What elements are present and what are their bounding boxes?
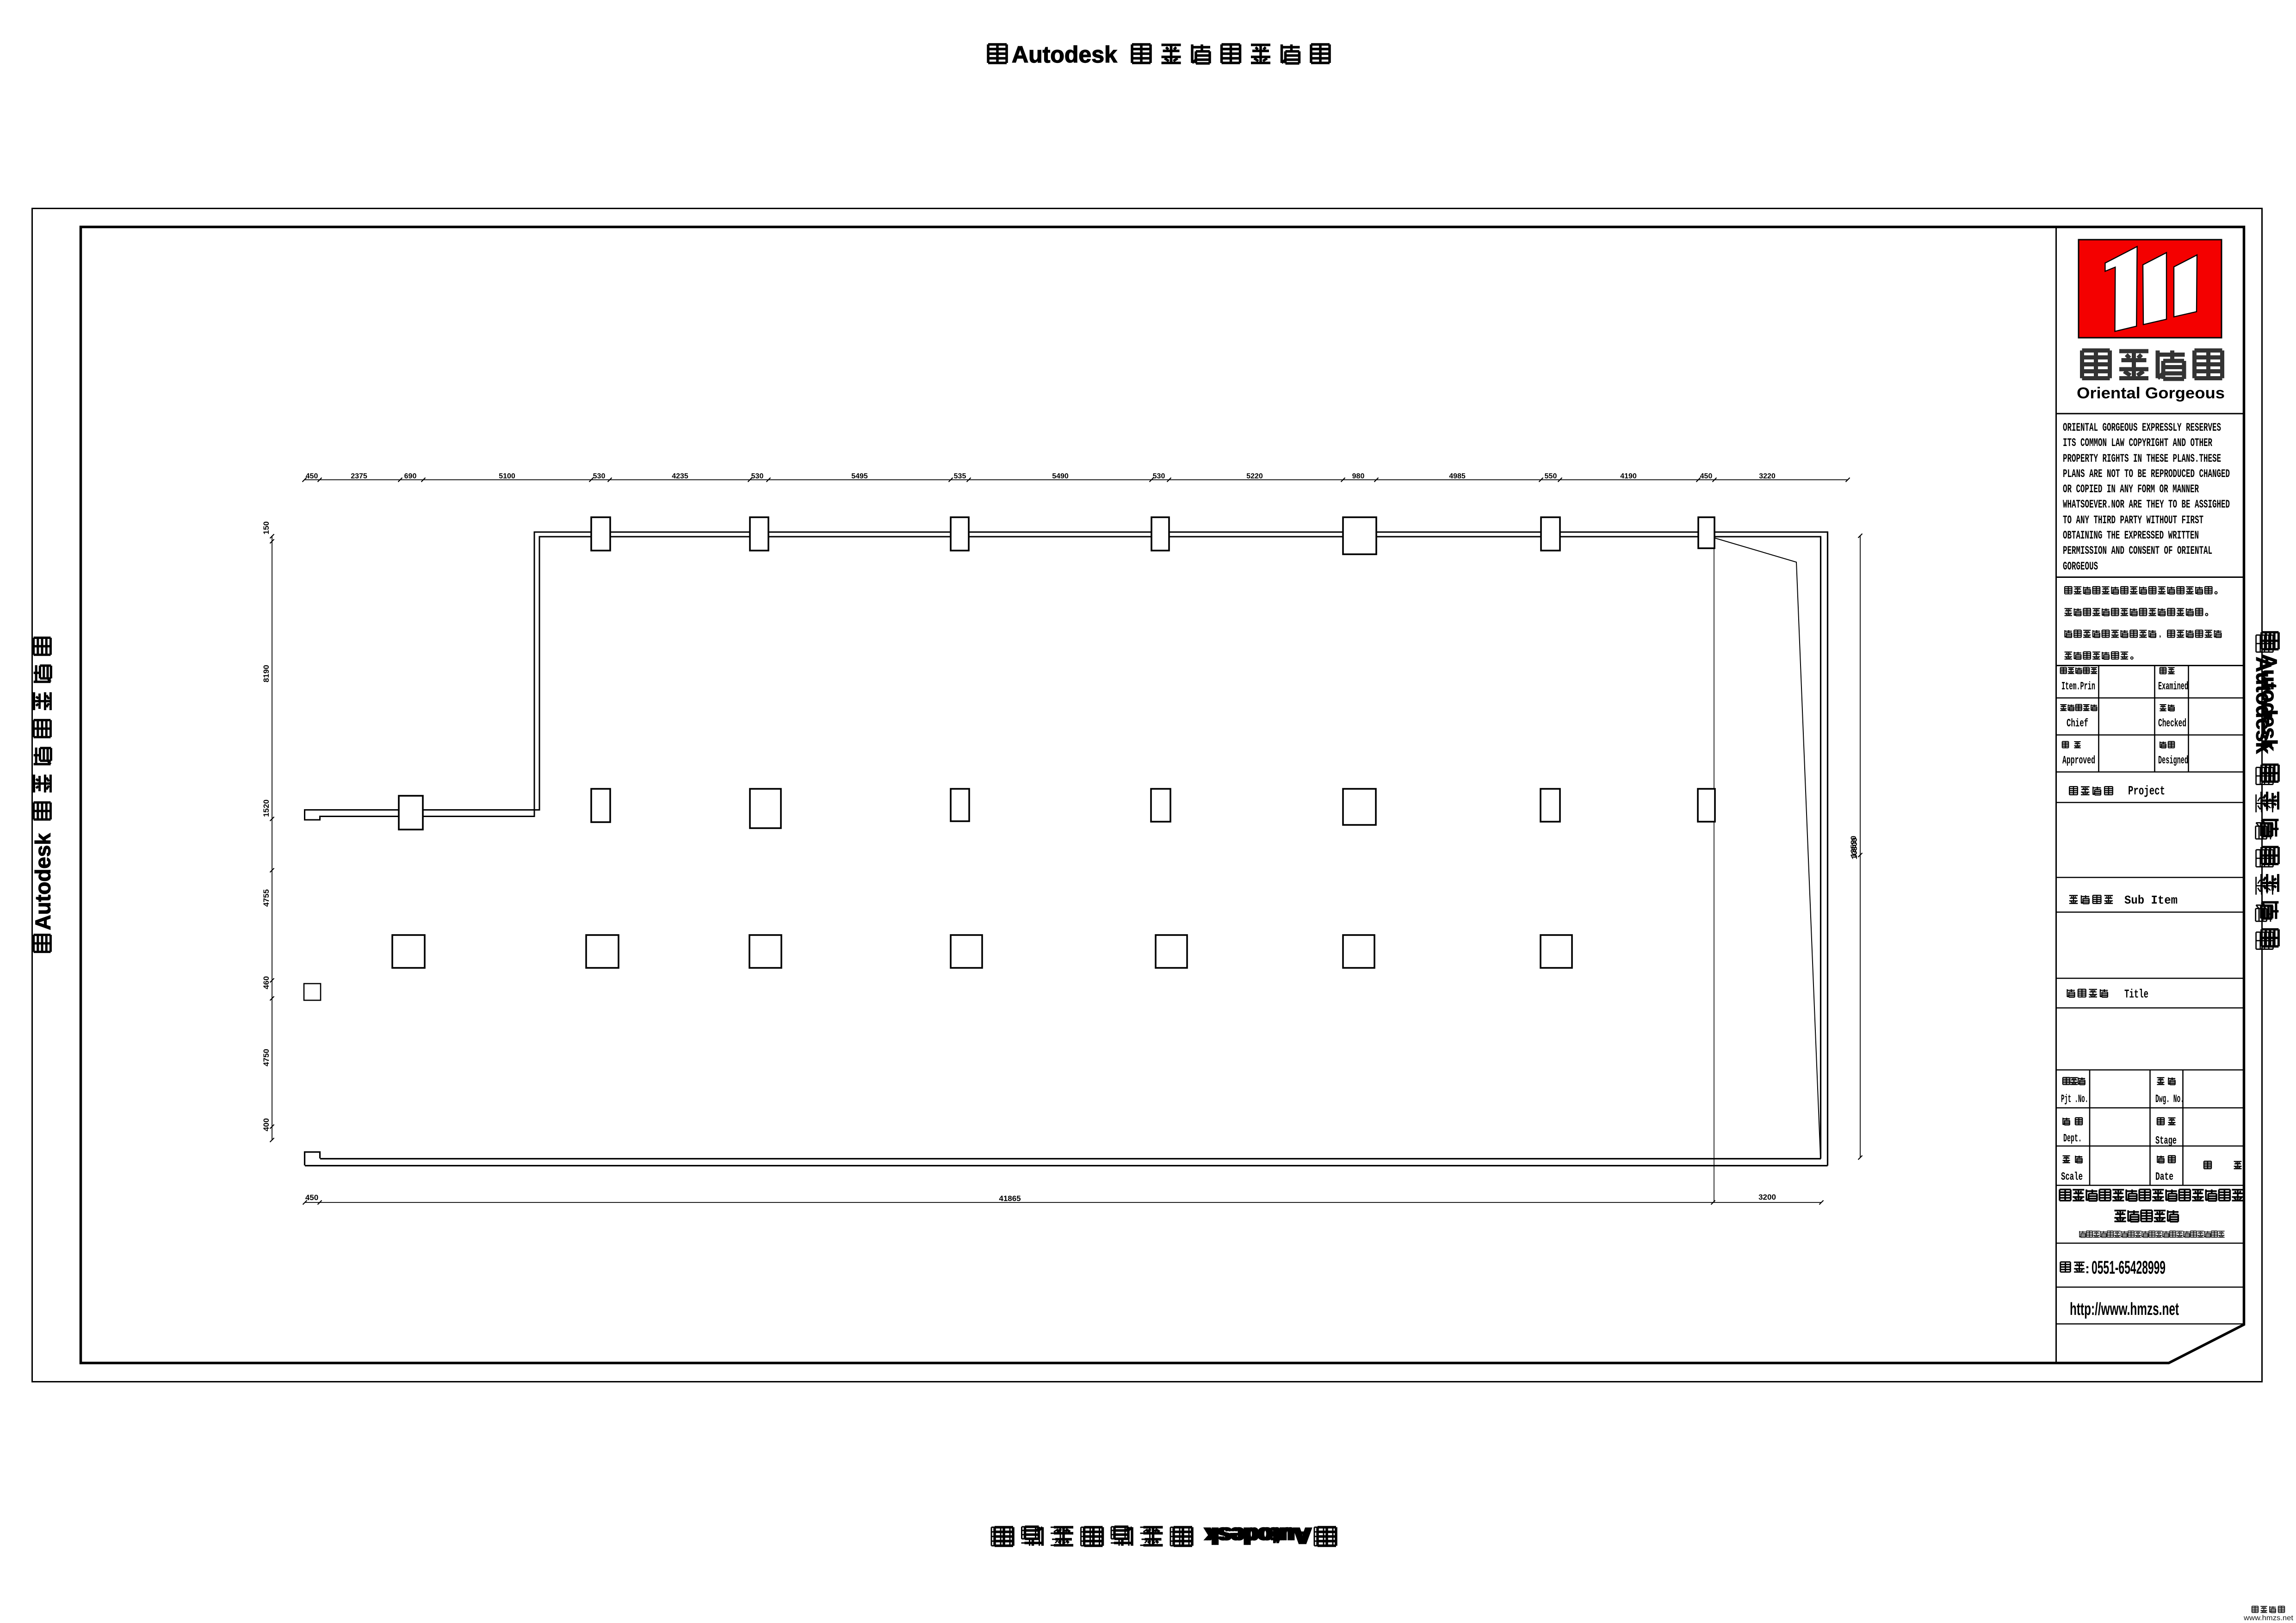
svg-text:450: 450: [1700, 472, 1713, 480]
svg-text:5495: 5495: [851, 472, 868, 480]
svg-text:TO ANY THIRD PARTY WITHOUT FIR: TO ANY THIRD PARTY WITHOUT FIRST: [2063, 514, 2203, 527]
svg-text:PROPERTY RIGHTS IN THESE PLANS: PROPERTY RIGHTS IN THESE PLANS.THESE: [2063, 452, 2221, 465]
svg-text:PLANS ARE NOT TO BE REPRODUCED: PLANS ARE NOT TO BE REPRODUCED CHANGED: [2063, 467, 2230, 481]
svg-text:4985: 4985: [1449, 472, 1466, 480]
svg-text:Chief: Chief: [2067, 718, 2088, 730]
svg-text:2375: 2375: [351, 472, 367, 480]
svg-text:5490: 5490: [1052, 472, 1069, 480]
svg-text:OR COPIED IN ANY FORM OR MANNE: OR COPIED IN ANY FORM OR MANNER: [2063, 483, 2199, 496]
svg-text:4755: 4755: [262, 889, 271, 907]
svg-text:4235: 4235: [672, 472, 688, 480]
svg-text:ORIENTAL GORGEOUS EXPRESSLY RE: ORIENTAL GORGEOUS EXPRESSLY RESERVES: [2063, 421, 2221, 434]
svg-text:450: 450: [306, 472, 318, 480]
svg-text:Project: Project: [2128, 785, 2165, 799]
svg-text:530: 530: [1153, 472, 1165, 480]
svg-text:Item.Prin: Item.Prin: [2061, 681, 2095, 693]
svg-text:Dwg. No.: Dwg. No.: [2155, 1093, 2184, 1106]
svg-text:0551-65428999: 0551-65428999: [2092, 1258, 2166, 1278]
svg-text:Autodesk: Autodesk: [1012, 42, 1117, 68]
svg-text:Date: Date: [2155, 1171, 2173, 1183]
svg-text:10800: 10800: [1850, 837, 1859, 859]
svg-text:8190: 8190: [262, 665, 271, 682]
svg-text:150: 150: [262, 521, 271, 534]
svg-text:550: 550: [1545, 472, 1557, 480]
svg-text:1520: 1520: [262, 799, 271, 817]
svg-text:ITS COMMON LAW COPYRIGHT AND O: ITS COMMON LAW COPYRIGHT AND OTHER: [2063, 436, 2212, 450]
svg-text:Autodesk: Autodesk: [31, 833, 55, 930]
svg-text:Checked: Checked: [2158, 718, 2186, 730]
svg-text:Autodesk: Autodesk: [2252, 657, 2276, 754]
svg-text:GORGEOUS: GORGEOUS: [2063, 560, 2098, 573]
svg-text:980: 980: [1352, 472, 1365, 480]
svg-text:3220: 3220: [1759, 472, 1776, 480]
svg-text:690: 690: [404, 472, 417, 480]
svg-text:400: 400: [262, 1118, 271, 1131]
svg-text:Dept.: Dept.: [2063, 1133, 2082, 1145]
svg-text:4750: 4750: [262, 1049, 271, 1066]
svg-text:5100: 5100: [499, 472, 515, 480]
svg-text:PERMISSION AND CONSENT OF ORIE: PERMISSION AND CONSENT OF ORIENTAL: [2063, 544, 2212, 558]
svg-text:450: 450: [305, 1193, 318, 1202]
svg-text:Approved: Approved: [2062, 755, 2095, 767]
svg-text:www.hmzs.net: www.hmzs.net: [2243, 1614, 2294, 1622]
svg-text:Scale: Scale: [2061, 1171, 2083, 1183]
svg-text:WHATSOEVER.NOR ARE THEY TO BE: WHATSOEVER.NOR ARE THEY TO BE ASSIGHED: [2063, 498, 2230, 511]
svg-text:Examined: Examined: [2158, 681, 2188, 693]
svg-text:http://www.hmzs.net: http://www.hmzs.net: [2070, 1300, 2179, 1319]
svg-text:OBTAINING THE EXPRESSED WRITTE: OBTAINING THE EXPRESSED WRITTEN: [2063, 529, 2199, 542]
svg-text:4190: 4190: [1620, 472, 1637, 480]
svg-text:41865: 41865: [999, 1194, 1021, 1203]
svg-text:Sub Item: Sub Item: [2124, 893, 2178, 907]
svg-text:Title: Title: [2124, 987, 2148, 1001]
svg-text:Oriental Gorgeous: Oriental Gorgeous: [2077, 384, 2225, 402]
svg-text::: :: [2085, 1261, 2090, 1276]
svg-text:530: 530: [593, 472, 606, 480]
svg-text:530: 530: [751, 472, 764, 480]
svg-text:3200: 3200: [1758, 1193, 1776, 1202]
svg-text:Autodesk: Autodesk: [1204, 1523, 1309, 1549]
svg-text:Pjt .No.: Pjt .No.: [2061, 1093, 2088, 1106]
svg-text:Stage: Stage: [2155, 1135, 2177, 1147]
svg-text:Designed: Designed: [2158, 755, 2188, 767]
svg-text:460: 460: [262, 976, 271, 989]
svg-text:5220: 5220: [1246, 472, 1263, 480]
svg-text:535: 535: [954, 472, 966, 480]
